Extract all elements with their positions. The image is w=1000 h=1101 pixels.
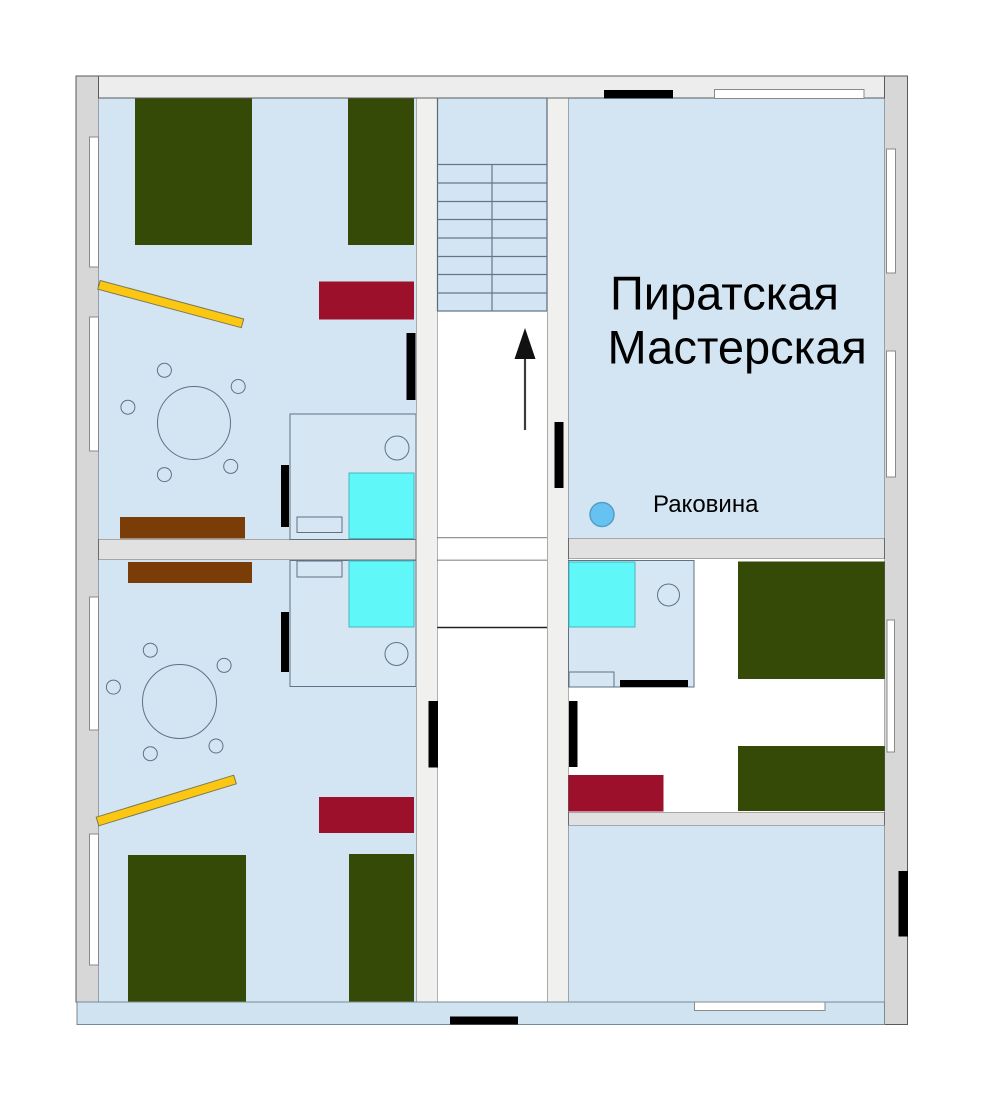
svg-text:Мастерская: Мастерская: [608, 321, 867, 374]
svg-text:Раковина: Раковина: [653, 491, 759, 518]
svg-text:Пиратская: Пиратская: [610, 267, 839, 320]
